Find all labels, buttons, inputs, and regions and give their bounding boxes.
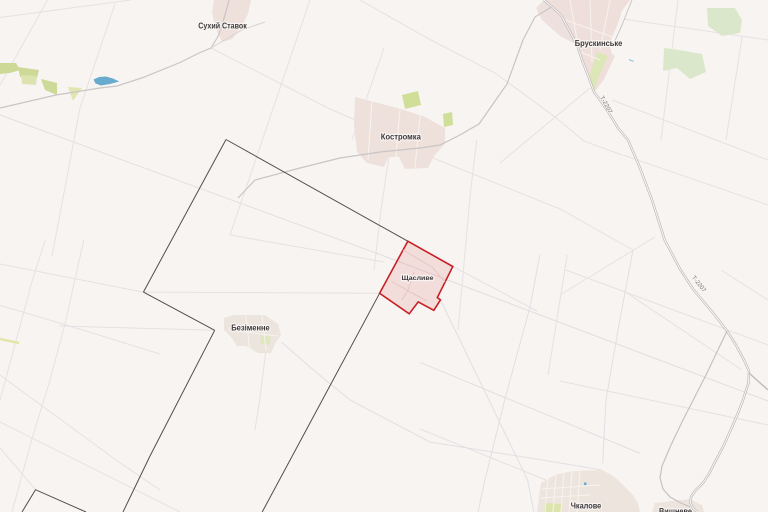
svg-text:Костромка: Костромка [381,132,421,142]
svg-text:Сухий Ставок: Сухий Ставок [198,21,247,31]
svg-text:Щасливе: Щасливе [402,275,434,282]
svg-text:Вишневе: Вишневе [659,506,692,512]
svg-text:Чкалове: Чкалове [571,501,602,511]
svg-text:Брускинське: Брускинське [575,38,623,48]
svg-text:Безіменне: Безіменне [231,323,270,333]
